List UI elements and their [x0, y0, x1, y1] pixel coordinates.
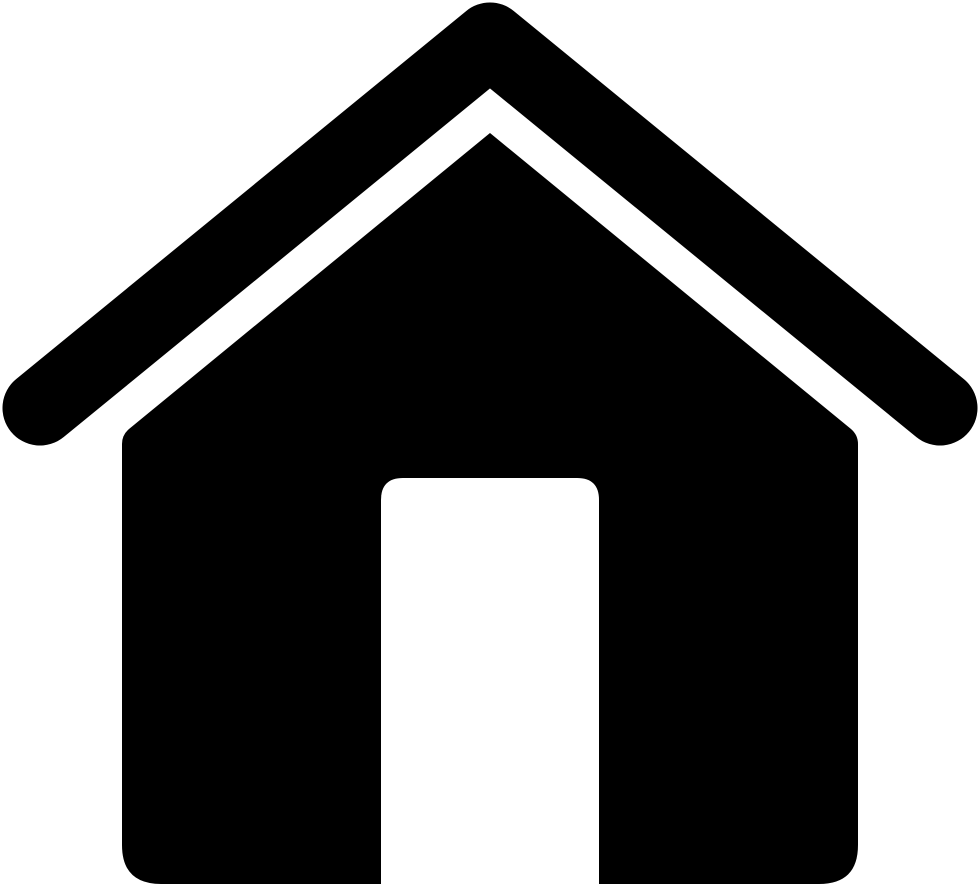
- home-icon: [0, 0, 980, 886]
- icon-canvas: [0, 0, 980, 886]
- door-shape: [381, 478, 599, 886]
